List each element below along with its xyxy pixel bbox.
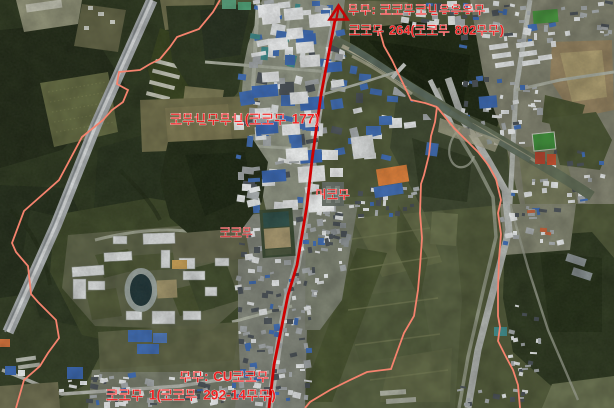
svg-text:1(: 1( — [149, 388, 162, 403]
svg-text:177): 177) — [292, 112, 319, 127]
svg-text:CU: CU — [213, 369, 232, 384]
svg-text:264(: 264( — [389, 22, 416, 37]
svg-text:(: ( — [245, 112, 250, 127]
svg-text::: : — [372, 2, 376, 17]
svg-text:802: 802 — [455, 22, 477, 37]
svg-text:): ) — [271, 388, 276, 403]
svg-text:292-14: 292-14 — [203, 388, 246, 403]
svg-text:): ) — [500, 22, 504, 37]
svg-text::: : — [204, 369, 208, 384]
